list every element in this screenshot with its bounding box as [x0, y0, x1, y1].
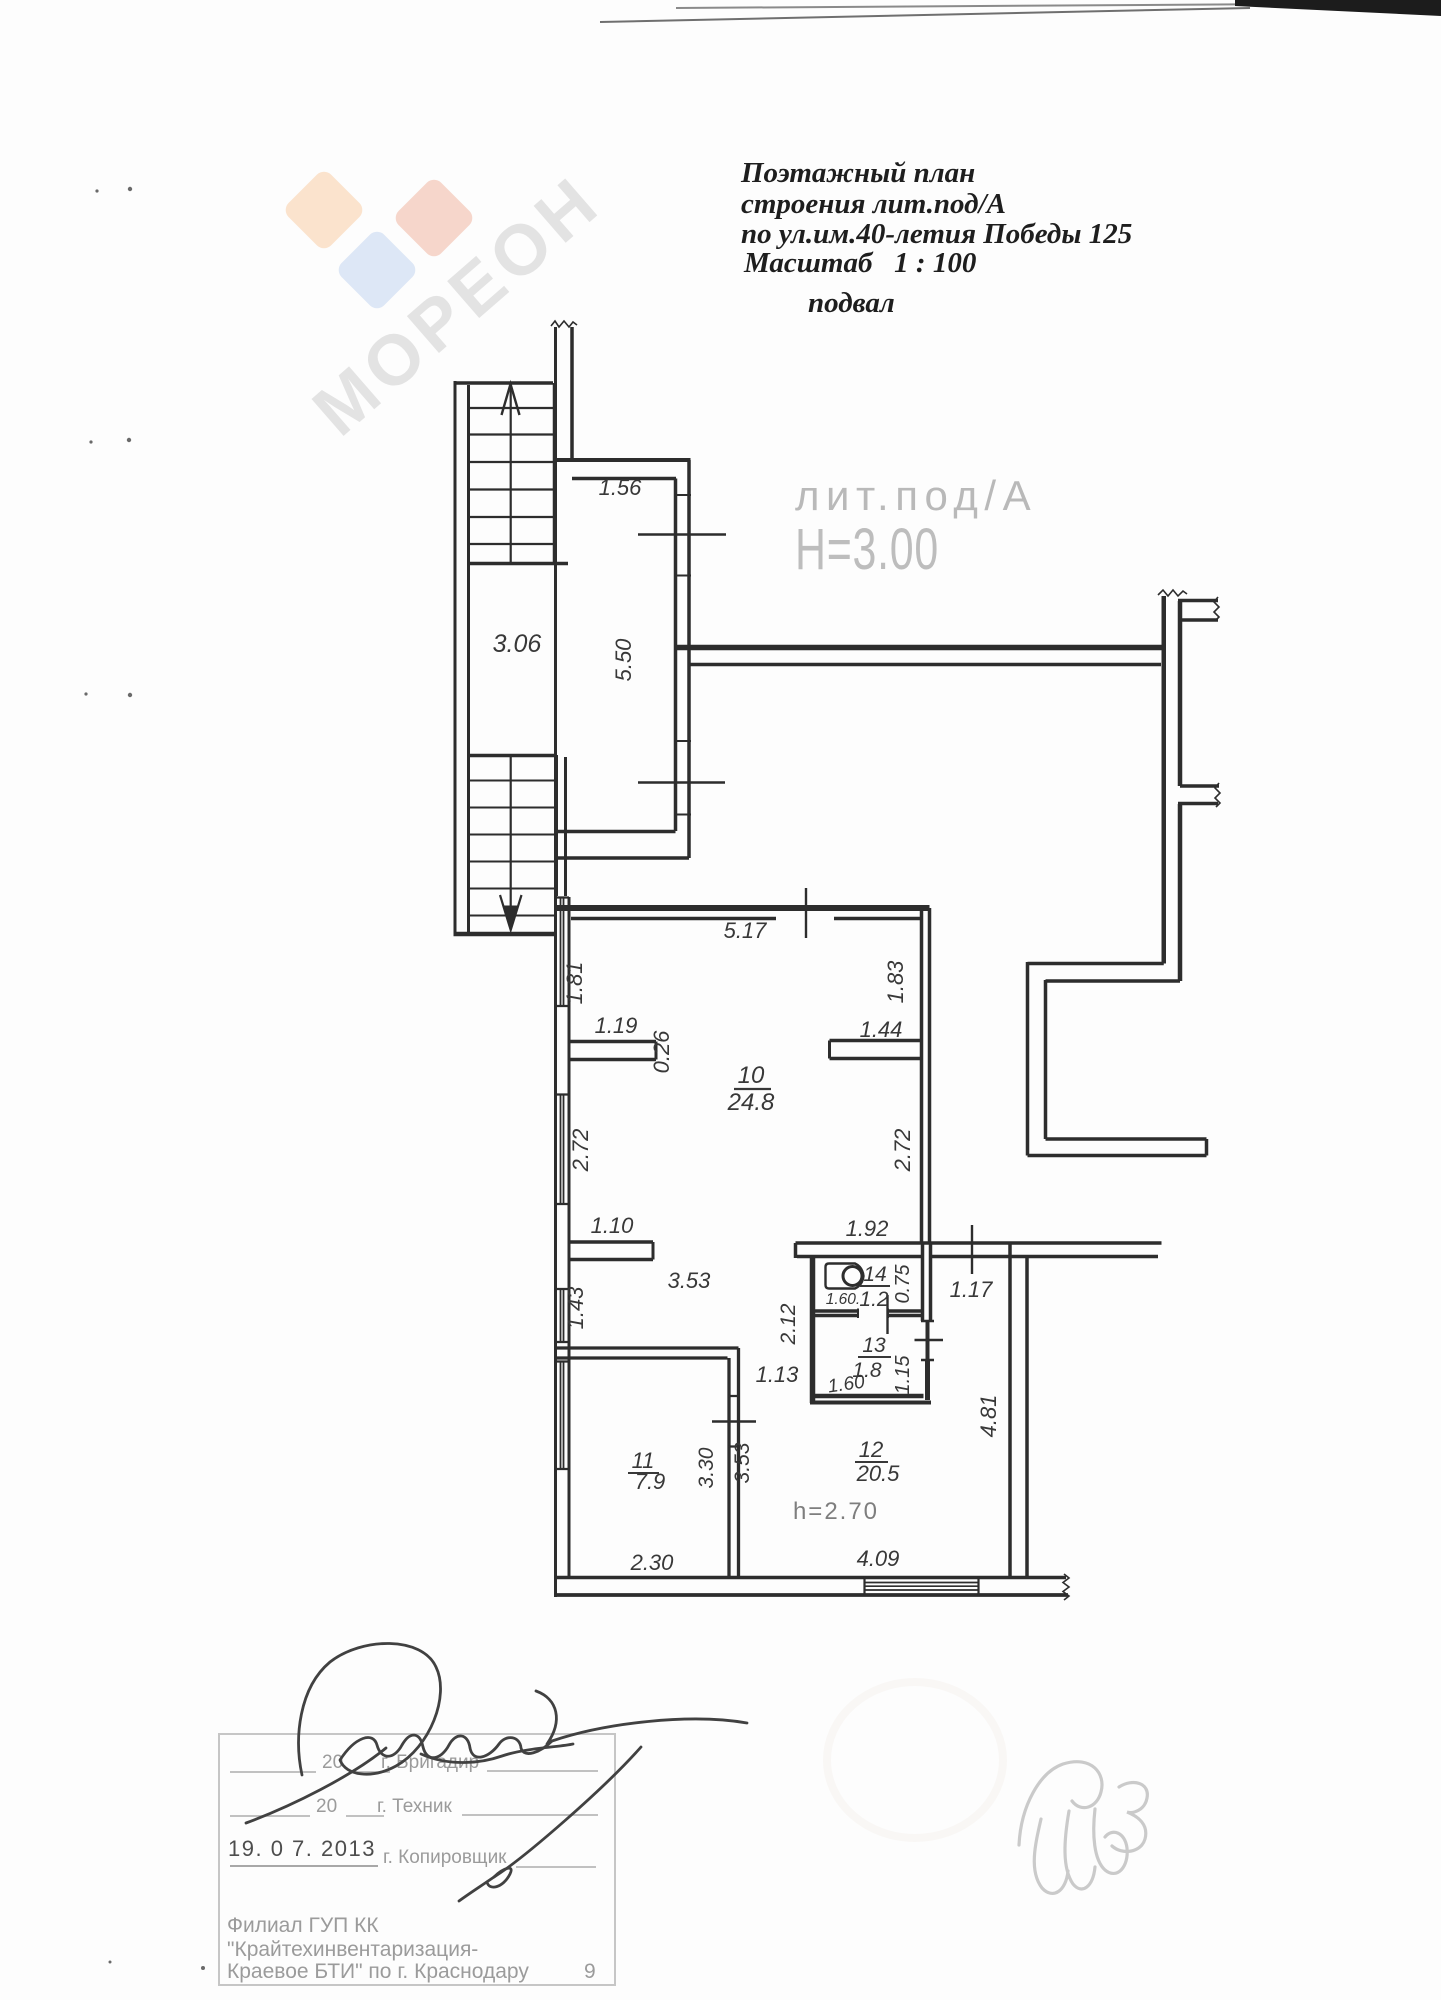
svg-text:1.15: 1.15 [892, 1355, 914, 1395]
svg-text:2.72: 2.72 [890, 1129, 915, 1173]
svg-text:24.8: 24.8 [727, 1089, 775, 1116]
svg-text:12: 12 [859, 1437, 883, 1462]
svg-text:1.10: 1.10 [591, 1213, 635, 1238]
svg-text:5.17: 5.17 [724, 918, 768, 943]
svg-text:1.56: 1.56 [599, 475, 643, 500]
svg-text:г. Техник: г. Техник [377, 1796, 452, 1817]
svg-text:Поэтажный план: Поэтажный план [740, 157, 975, 189]
svg-text:г. Копировщик: г. Копировщик [383, 1847, 507, 1868]
svg-text:1.44: 1.44 [860, 1017, 903, 1042]
svg-text:1.60: 1.60 [826, 1372, 866, 1398]
svg-text:"Крайтехинвентаризация-: "Крайтехинвентаризация- [227, 1938, 478, 1961]
svg-text:3.06: 3.06 [493, 630, 542, 658]
svg-text:Н=3.00: Н=3.00 [795, 517, 939, 582]
svg-text:19. 0 7. 2013: 19. 0 7. 2013 [228, 1836, 376, 1861]
svg-text:3.53: 3.53 [731, 1442, 754, 1483]
svg-text:0.75: 0.75 [892, 1264, 914, 1304]
svg-text:2.72: 2.72 [568, 1129, 593, 1173]
svg-text:2.30: 2.30 [630, 1550, 675, 1575]
svg-text:подвал: подвал [808, 287, 895, 319]
svg-text:Масштаб 1 : 100: Масштаб 1 : 100 [743, 247, 976, 279]
svg-text:1.92: 1.92 [846, 1216, 889, 1241]
svg-text:1.13: 1.13 [756, 1362, 800, 1387]
svg-text:1.2: 1.2 [859, 1288, 889, 1311]
svg-text:3.30: 3.30 [695, 1447, 718, 1488]
svg-text:4.09: 4.09 [857, 1546, 900, 1571]
svg-text:h=2.70: h=2.70 [793, 1498, 879, 1525]
svg-text:5.50: 5.50 [611, 638, 636, 682]
svg-text:3.53: 3.53 [668, 1268, 712, 1293]
svg-text:0.26: 0.26 [649, 1030, 674, 1074]
svg-text:2.12: 2.12 [777, 1303, 800, 1345]
svg-text:Филиал ГУП КК: Филиал ГУП КК [227, 1914, 379, 1937]
svg-text:4.81: 4.81 [976, 1395, 1001, 1438]
svg-text:1.60.: 1.60. [826, 1291, 860, 1308]
svg-text:1.81: 1.81 [562, 962, 587, 1005]
svg-text:1.17: 1.17 [950, 1277, 994, 1302]
svg-text:10: 10 [738, 1062, 765, 1089]
svg-text:1.19: 1.19 [595, 1013, 638, 1038]
svg-text:строения лит.под/А: строения лит.под/А [741, 188, 1006, 220]
svg-text:20: 20 [316, 1796, 337, 1817]
svg-text:13: 13 [862, 1334, 886, 1357]
svg-text:1.43: 1.43 [563, 1286, 588, 1330]
svg-text:Краевое БТИ" по г. Краснодару: Краевое БТИ" по г. Краснодару [227, 1960, 529, 1983]
svg-text:9: 9 [584, 1960, 596, 1983]
svg-text:лит.под/А: лит.под/А [795, 472, 1037, 519]
svg-text:20.5: 20.5 [856, 1461, 901, 1486]
svg-text:1.83: 1.83 [883, 960, 908, 1004]
svg-text:по ул.им.40-летия Победы 125: по ул.им.40-летия Победы 125 [741, 218, 1132, 250]
svg-text:7.9: 7.9 [635, 1469, 666, 1494]
svg-text:14: 14 [863, 1263, 886, 1286]
